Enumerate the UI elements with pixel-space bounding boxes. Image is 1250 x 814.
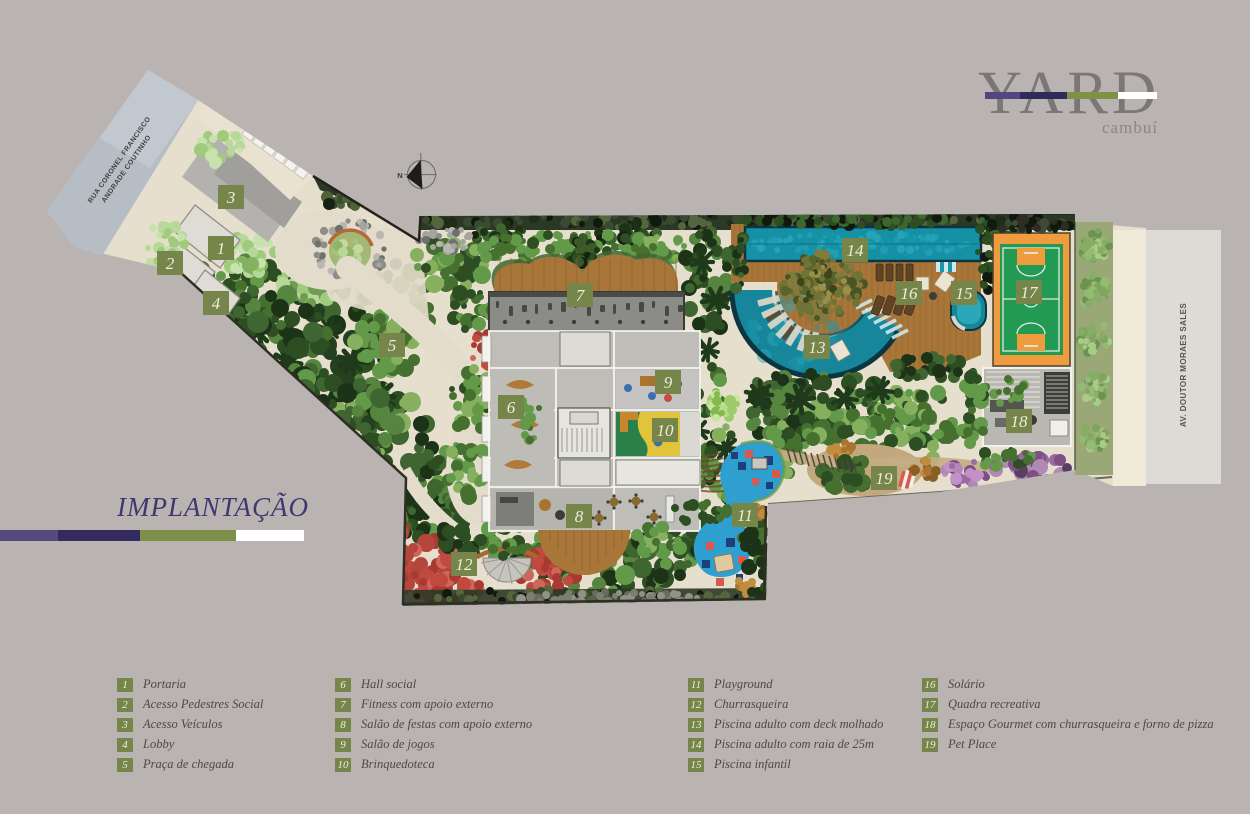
svg-text:19: 19 [876, 469, 894, 488]
svg-text:10: 10 [657, 421, 675, 440]
svg-text:6: 6 [507, 398, 516, 417]
svg-text:N: N [397, 171, 402, 180]
svg-text:1: 1 [217, 239, 226, 258]
svg-text:12: 12 [456, 555, 474, 574]
svg-text:14: 14 [847, 241, 865, 260]
svg-text:15: 15 [956, 284, 973, 303]
svg-text:17: 17 [1021, 283, 1040, 302]
svg-text:9: 9 [664, 373, 673, 392]
svg-text:13: 13 [809, 338, 826, 357]
svg-text:3: 3 [226, 188, 236, 207]
svg-text:AV. DOUTOR MORAES SALES: AV. DOUTOR MORAES SALES [1179, 303, 1188, 427]
svg-text:16: 16 [901, 284, 919, 303]
svg-text:2: 2 [166, 254, 175, 273]
svg-text:18: 18 [1011, 412, 1029, 431]
svg-text:11: 11 [737, 506, 753, 525]
svg-text:8: 8 [575, 507, 584, 526]
svg-text:5: 5 [388, 336, 397, 355]
svg-text:4: 4 [212, 294, 221, 313]
